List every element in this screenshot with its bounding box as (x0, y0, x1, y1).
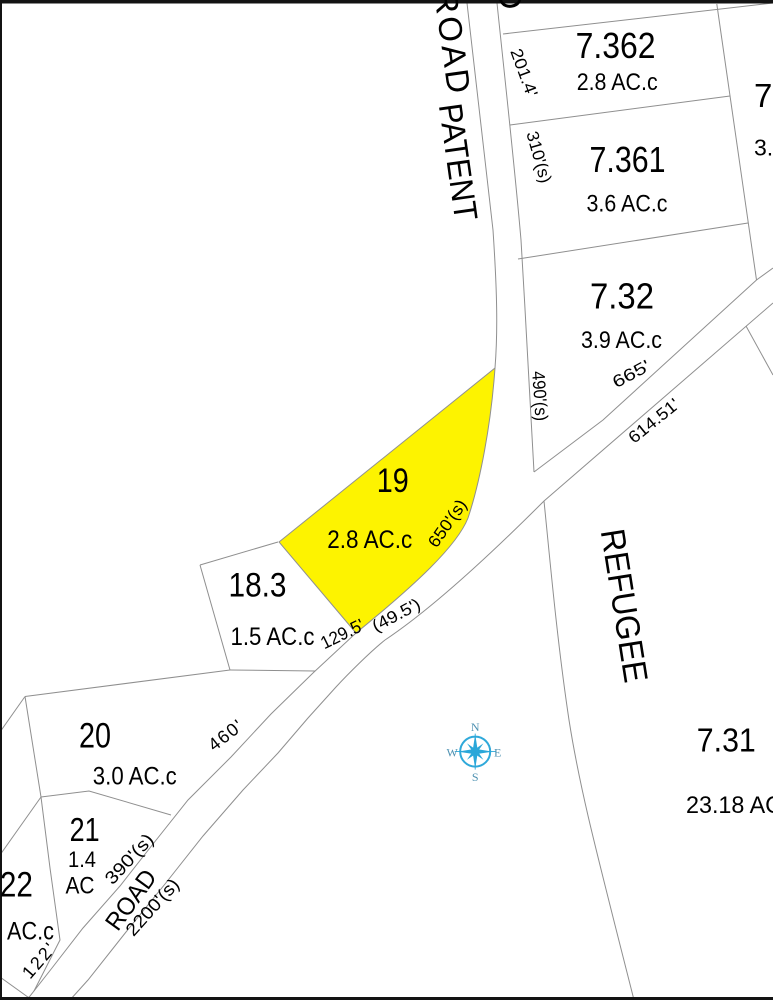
svg-text:490'(s): 490'(s) (528, 370, 551, 421)
svg-text:7.361: 7.361 (590, 139, 666, 180)
svg-text:7.362: 7.362 (576, 25, 656, 66)
svg-text:23.18 AC: 23.18 AC (686, 792, 773, 819)
svg-text:S: S (472, 770, 479, 784)
svg-text:18.3: 18.3 (229, 566, 287, 604)
svg-text:2.8 AC.c: 2.8 AC.c (327, 526, 412, 554)
svg-text:22: 22 (0, 866, 33, 905)
svg-text:7.31: 7.31 (697, 721, 756, 758)
svg-text:3.9 AC.c: 3.9 AC.c (581, 327, 662, 354)
svg-text:AC.c: AC.c (7, 917, 54, 945)
svg-text:1.5 AC.c: 1.5 AC.c (231, 623, 315, 651)
svg-text:20: 20 (79, 717, 111, 756)
svg-text:1.4: 1.4 (68, 847, 96, 872)
svg-text:3.6 AC.c: 3.6 AC.c (587, 191, 668, 218)
svg-text:7: 7 (754, 77, 772, 114)
svg-text:E: E (494, 745, 501, 759)
svg-text:N: N (471, 720, 480, 734)
svg-text:7.32: 7.32 (590, 276, 654, 317)
svg-text:AC: AC (66, 873, 95, 900)
svg-text:3.0 AC.c: 3.0 AC.c (93, 763, 177, 791)
svg-text:21: 21 (70, 811, 100, 848)
svg-text:W: W (447, 745, 459, 759)
svg-text:3.: 3. (754, 135, 773, 161)
svg-text:2.8 AC.c: 2.8 AC.c (577, 69, 658, 96)
svg-text:19: 19 (377, 462, 409, 500)
